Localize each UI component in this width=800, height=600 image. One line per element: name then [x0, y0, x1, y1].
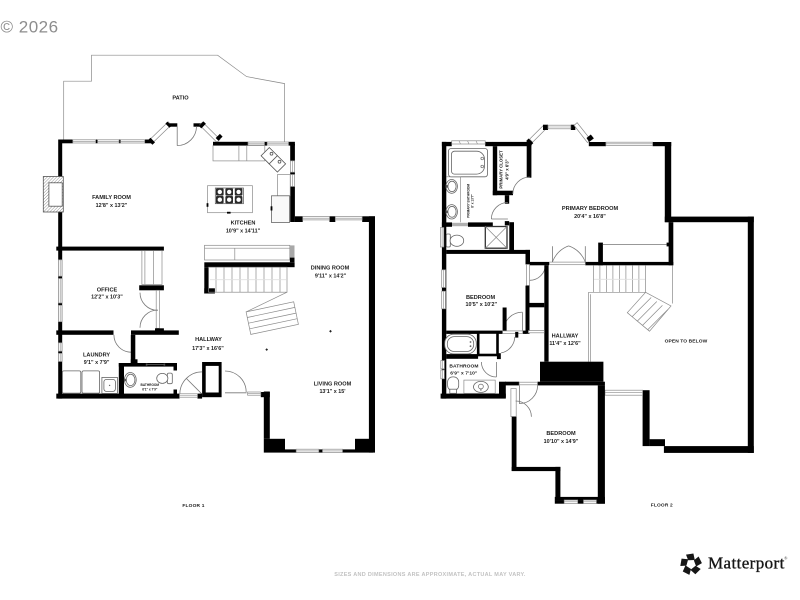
svg-text:10'10" x 14'9": 10'10" x 14'9"	[544, 439, 579, 445]
svg-text:20'4" x 16'8": 20'4" x 16'8"	[574, 214, 606, 220]
svg-text:17'3" x 16'6": 17'3" x 16'6"	[192, 346, 224, 352]
svg-text:8' x 13'7": 8' x 13'7"	[471, 194, 475, 208]
svg-text:SIZES AND DIMENSIONS ARE APPRO: SIZES AND DIMENSIONS ARE APPROXIMATE, AC…	[334, 572, 526, 578]
svg-text:© 2026: © 2026	[1, 18, 59, 37]
svg-text:OPEN TO BELOW: OPEN TO BELOW	[665, 339, 708, 345]
svg-text:4'9" x 6'3": 4'9" x 6'3"	[505, 159, 510, 179]
svg-text:DINING ROOM: DINING ROOM	[311, 265, 350, 271]
svg-text:13'1" x 15': 13'1" x 15'	[319, 389, 345, 395]
svg-text:OFFICE: OFFICE	[97, 287, 118, 293]
svg-text:BATHROOM: BATHROOM	[449, 363, 478, 369]
svg-text:BEDROOM: BEDROOM	[466, 295, 496, 301]
svg-text:9'11" x 14'2": 9'11" x 14'2"	[315, 273, 347, 279]
svg-text:HALLWAY: HALLWAY	[552, 334, 579, 340]
svg-text:10'9" x 14'11": 10'9" x 14'11"	[226, 229, 261, 235]
svg-text:PRIMARY CLOSET: PRIMARY CLOSET	[499, 150, 504, 189]
svg-text:PRIMARY BEDROOM: PRIMARY BEDROOM	[562, 206, 619, 212]
svg-text:12'8" x 13'2": 12'8" x 13'2"	[96, 203, 128, 209]
svg-text:PATIO: PATIO	[172, 96, 189, 102]
svg-text:6'1" x 7'9": 6'1" x 7'9"	[142, 387, 158, 391]
svg-text:BEDROOM: BEDROOM	[546, 431, 576, 437]
svg-text:12'2" x 10'3": 12'2" x 10'3"	[91, 295, 123, 301]
svg-text:6'9" x 7'10": 6'9" x 7'10"	[450, 371, 477, 377]
svg-text:HALLWAY: HALLWAY	[195, 337, 222, 343]
svg-text:11'4" x 12'6": 11'4" x 12'6"	[549, 341, 581, 347]
svg-text:KITCHEN: KITCHEN	[231, 221, 256, 227]
svg-text:10'5" x 10'2": 10'5" x 10'2"	[465, 302, 497, 308]
svg-text:FLOOR 2: FLOOR 2	[651, 503, 673, 509]
svg-text:LAUNDRY: LAUNDRY	[83, 353, 110, 359]
svg-text:FAMILY ROOM: FAMILY ROOM	[92, 195, 131, 201]
svg-text:9'1" x 7'9": 9'1" x 7'9"	[84, 360, 110, 366]
svg-text:Matterport: Matterport	[708, 554, 785, 573]
svg-text:LIVING ROOM: LIVING ROOM	[314, 382, 352, 388]
svg-text:®: ®	[784, 556, 788, 561]
svg-text:FLOOR 1: FLOOR 1	[182, 503, 204, 509]
